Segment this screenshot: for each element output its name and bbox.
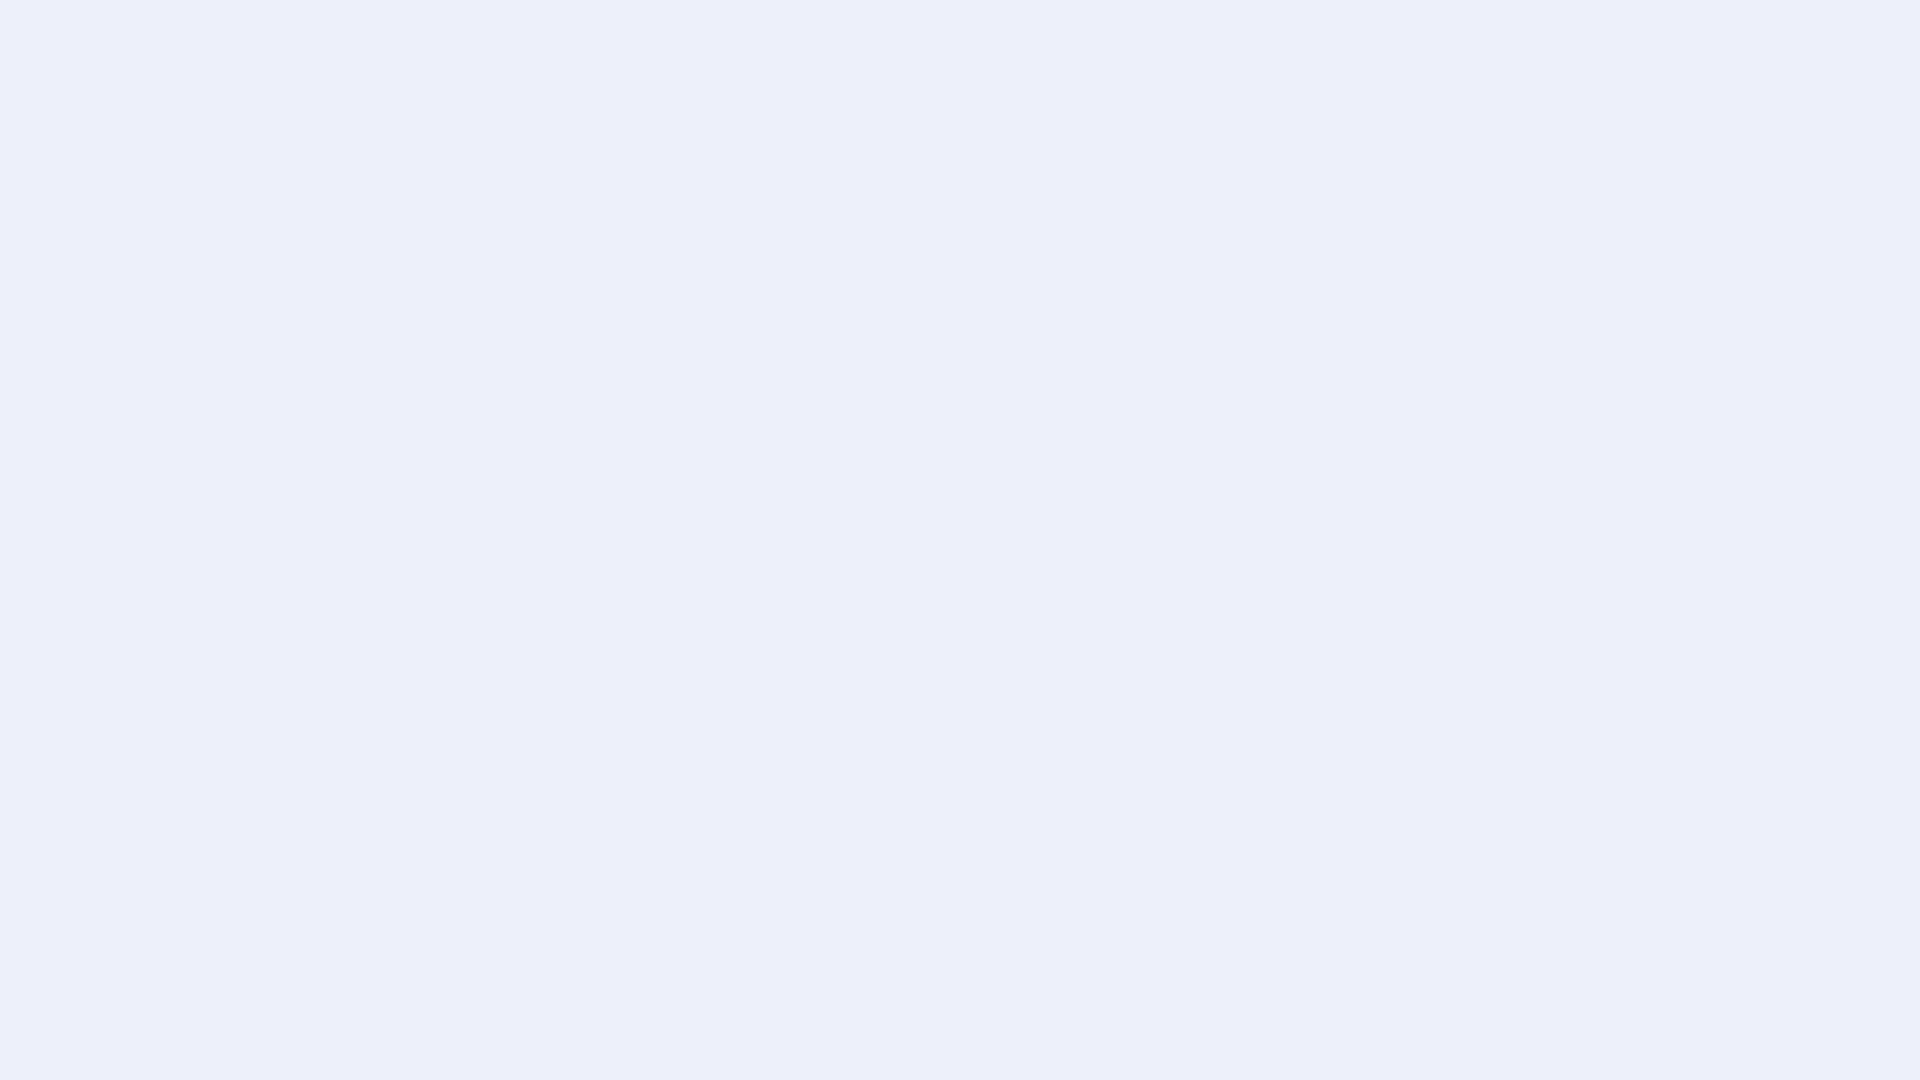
floorplan-render <box>0 0 1920 1080</box>
apartment-render <box>0 0 1920 1080</box>
